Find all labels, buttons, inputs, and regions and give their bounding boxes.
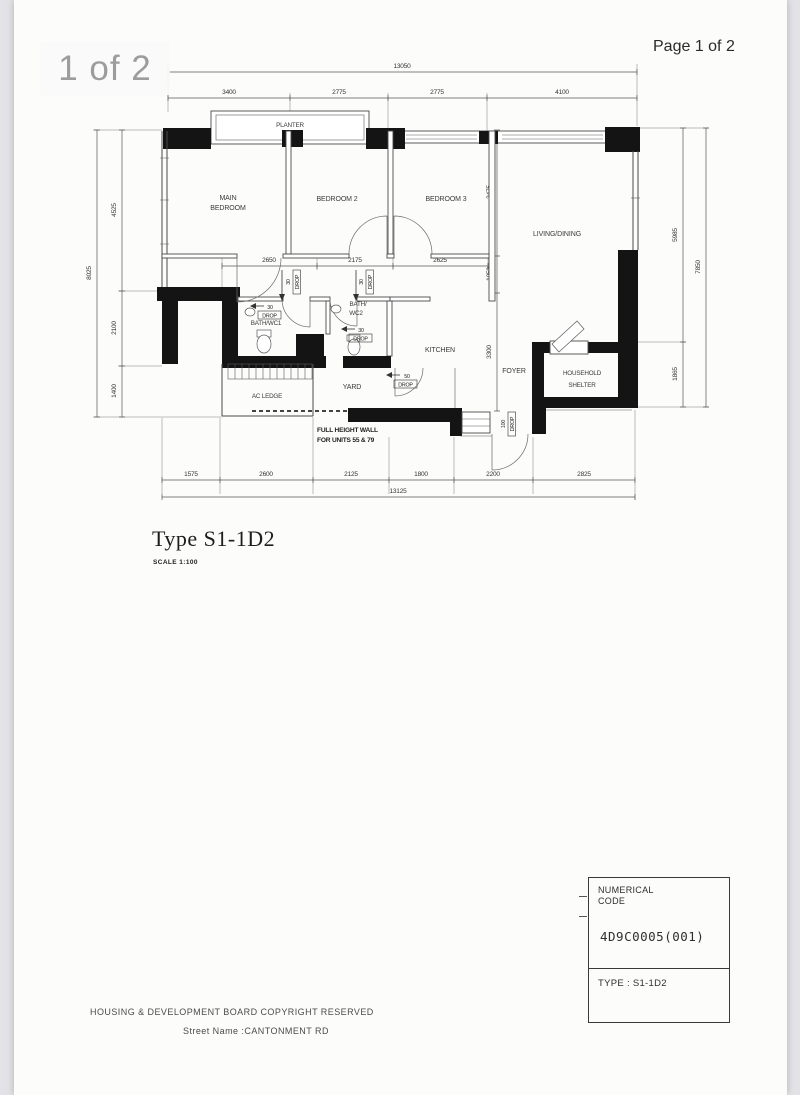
- drop100-word: DROP: [510, 416, 516, 431]
- title-block-header-line1: NUMERICAL: [598, 885, 729, 896]
- dim-right-1: 5985: [672, 228, 679, 242]
- interior-walls: [162, 131, 632, 436]
- room-label-kitchen: KITCHEN: [425, 347, 455, 354]
- room-label-bath-wc1: BATH/WC1: [251, 320, 282, 327]
- plan-type-title: Type S1-1D2: [152, 526, 275, 552]
- room-label-foyer: FOYER: [502, 368, 526, 375]
- screenshot-root: { "viewer": { "badge": "1 of 2", "page_i…: [0, 0, 800, 1095]
- room-label-bath-wc2-1: BATH/: [349, 301, 367, 308]
- drop50-value: 50: [404, 374, 410, 380]
- dim-top-1: 3400: [222, 89, 236, 96]
- dim-left-1: 4525: [111, 203, 118, 217]
- dim-top-total: 13050: [393, 63, 411, 70]
- street-name-line: Street Name :CANTONMENT RD: [183, 1026, 329, 1036]
- drop30-c-value: 30: [267, 305, 273, 311]
- dim-left-3: 1400: [111, 384, 118, 398]
- dim-left-total: 8025: [86, 266, 93, 280]
- title-block-tick-1: [579, 896, 587, 897]
- dim-bottom-5: 2200: [486, 471, 500, 478]
- numerical-code-title-block: NUMERICAL CODE 4D9C0005(001) TYPE : S1-1…: [588, 877, 730, 1023]
- dim-mid-2: 2175: [348, 257, 362, 264]
- room-label-ac-ledge: AC LEDGE: [252, 393, 282, 400]
- full-height-wall-note: FULL HEIGHT WALL FOR UNITS 55 & 79: [317, 427, 378, 444]
- dim-bottom-2: 2600: [259, 471, 273, 478]
- room-label-main-bedroom-2: BEDROOM: [210, 205, 246, 212]
- title-block-header: NUMERICAL CODE: [589, 878, 729, 907]
- room-label-planter: PLANTER: [276, 122, 304, 129]
- title-block-type-row: TYPE : S1-1D2: [598, 978, 667, 989]
- room-label-bath-wc2-2: WC2: [349, 310, 363, 317]
- dim-bottom-total: 13125: [389, 488, 407, 495]
- room-label-bedroom2: BEDROOM 2: [316, 196, 357, 203]
- room-label-yard: YARD: [343, 384, 362, 391]
- dim-bottom-1: 1575: [184, 471, 198, 478]
- drop30-a-value: 30: [286, 279, 292, 285]
- room-label-household-shelter-1: HOUSEHOLD: [563, 370, 602, 377]
- drop30-b-word: DROP: [368, 274, 374, 289]
- room-label-main-bedroom-1: MAIN: [219, 195, 236, 202]
- copyright-line: HOUSING & DEVELOPMENT BOARD COPYRIGHT RE…: [90, 1007, 374, 1017]
- plan-scale-label: SCALE 1:100: [153, 559, 198, 566]
- title-block-divider: [589, 968, 729, 969]
- full-height-wall-line2: FOR UNITS 55 & 79: [317, 437, 375, 444]
- drop30-d-word: DROP: [353, 337, 368, 343]
- page-indicator: Page 1 of 2: [653, 38, 735, 56]
- dim-right-total: 7850: [695, 260, 702, 274]
- drop100-value: 100: [501, 420, 507, 428]
- drop30-d-value: 30: [358, 328, 364, 334]
- dim-top-2: 2775: [332, 89, 346, 96]
- drop30-a-word: DROP: [295, 274, 301, 289]
- viewer-page-badge-text: 1 of 2: [58, 49, 152, 89]
- room-label-bedroom3: BEDROOM 3: [425, 196, 466, 203]
- title-block-tick-2: [579, 916, 587, 917]
- dim-top-3: 2775: [430, 89, 444, 96]
- drop30-b-value: 30: [359, 279, 365, 285]
- dim-mid-1: 2650: [262, 257, 276, 264]
- dim-left-2: 2100: [111, 321, 118, 335]
- dim-right-2: 1865: [672, 367, 679, 381]
- full-height-wall-line1: FULL HEIGHT WALL: [317, 427, 378, 434]
- dim-bottom-3: 2125: [344, 471, 358, 478]
- room-label-living-dining: LIVING/DINING: [533, 231, 581, 238]
- dim-midv-3: 3300: [486, 345, 493, 359]
- dim-bottom-6: 2825: [577, 471, 591, 478]
- title-block-header-line2: CODE: [598, 896, 729, 907]
- dim-top-4: 4100: [555, 89, 569, 96]
- drop50-word: DROP: [398, 383, 413, 389]
- room-label-household-shelter-2: SHELTER: [568, 382, 596, 389]
- dim-bottom-4: 1800: [414, 471, 428, 478]
- viewer-page-badge: 1 of 2: [40, 42, 170, 96]
- numerical-code-value: 4D9C0005(001): [589, 907, 729, 944]
- drop30-c-word: DROP: [262, 314, 277, 320]
